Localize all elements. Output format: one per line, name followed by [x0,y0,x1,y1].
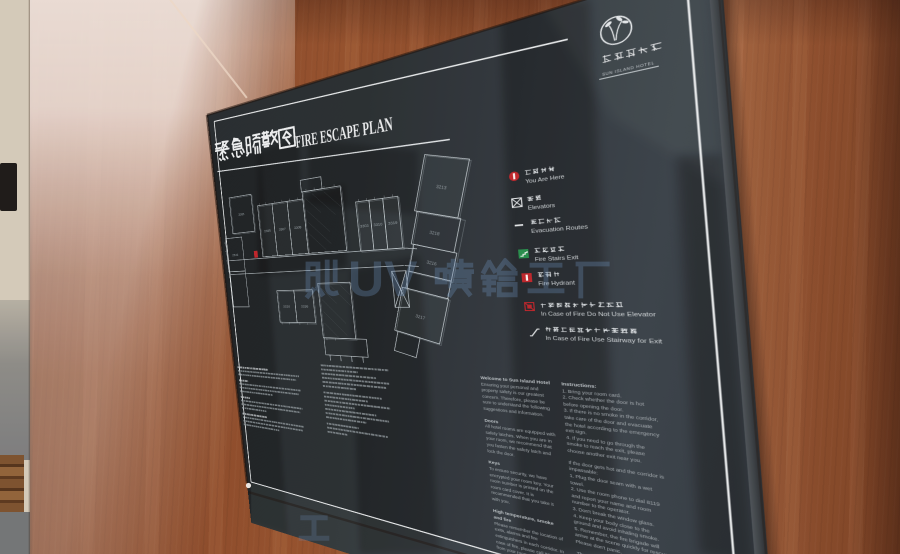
svg-text:UV: UV [348,251,418,307]
